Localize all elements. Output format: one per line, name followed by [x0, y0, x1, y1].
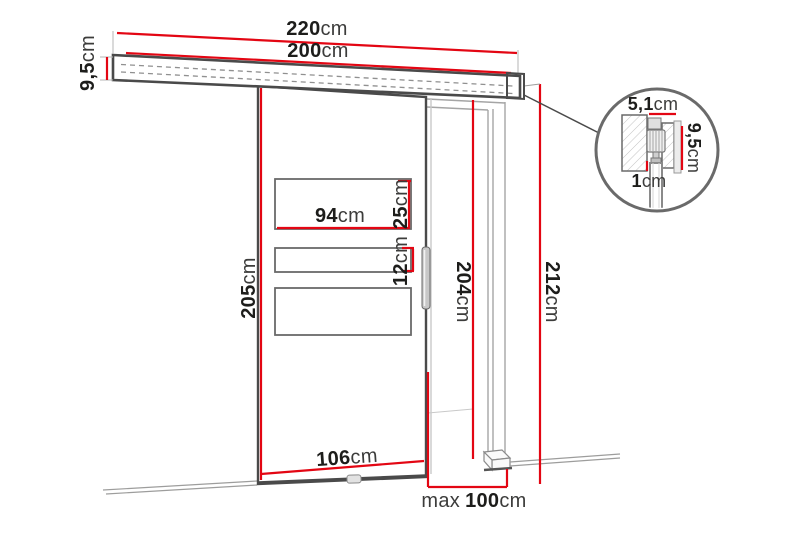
dim-unit: cm: [541, 296, 563, 323]
dim-label-glass-width: 94cm: [315, 206, 365, 226]
dim-value: 205: [238, 284, 260, 318]
window-bottom: [275, 288, 411, 335]
dim-value: 25: [390, 206, 412, 229]
dim-value: 200: [287, 40, 321, 62]
dim-unit: cm: [338, 205, 365, 227]
dim-value: 106: [316, 447, 352, 471]
dim-value: 100: [465, 490, 499, 512]
dim-label-detail-clearance: 1cm: [632, 172, 667, 190]
dim-unit: cm: [499, 490, 526, 512]
dim-label-door-height: 205cm: [239, 257, 259, 319]
dim-label-overall-height: 212cm: [542, 261, 562, 323]
dim-unit: cm: [390, 179, 412, 206]
dim-prefix: max: [421, 490, 460, 512]
dim-label-rail-track: 200cm: [287, 41, 349, 61]
dim-unit: cm: [321, 18, 348, 40]
dim-label-doorway-height: 204cm: [453, 261, 473, 323]
dim-label-glass-middle-height: 12cm: [391, 236, 411, 286]
dim-value: 94: [315, 205, 338, 227]
dim-label-door-width: 106cm: [316, 446, 379, 470]
dim-unit: cm: [238, 257, 260, 284]
door-handle: [422, 247, 430, 309]
dim-line-212: [524, 84, 540, 484]
dim-unit: cm: [642, 171, 667, 191]
dim-unit: cm: [452, 296, 474, 323]
dim-value: 1: [632, 171, 642, 191]
dim-unit: cm: [684, 149, 704, 174]
dim-unit: cm: [350, 445, 379, 469]
dim-label-glass-top-height: 25cm: [391, 179, 411, 229]
dim-value: 212: [541, 261, 563, 295]
dim-label-rail-total: 220cm: [286, 19, 348, 39]
floor-guide: [347, 475, 361, 483]
dim-label-max-opening-width: max100cm: [421, 491, 526, 511]
dim-label-rail-height: 9,5cm: [78, 35, 98, 91]
dim-value: 204: [452, 261, 474, 295]
dim-value: 5,1: [628, 94, 654, 114]
dim-unit: cm: [77, 35, 99, 62]
dim-value: 12: [390, 263, 412, 286]
dim-value: 9,5: [77, 62, 99, 91]
dim-label-detail-width: 5,1cm: [628, 95, 679, 113]
floor-lines-left: [103, 481, 257, 494]
doorway-plinth: [484, 450, 510, 470]
diagram-canvas: 220cm 200cm 9,5cm 205cm 94cm 25cm 12cm 2…: [0, 0, 800, 533]
dim-value: 9,5: [684, 123, 704, 149]
dim-unit: cm: [390, 236, 412, 263]
dim-value: 220: [286, 18, 320, 40]
dim-label-detail-height: 9,5cm: [685, 123, 703, 174]
detail-wall-hatch-left: [622, 115, 647, 171]
detail-leader-line: [524, 95, 599, 133]
dim-unit: cm: [322, 40, 349, 62]
dim-unit: cm: [654, 94, 679, 114]
